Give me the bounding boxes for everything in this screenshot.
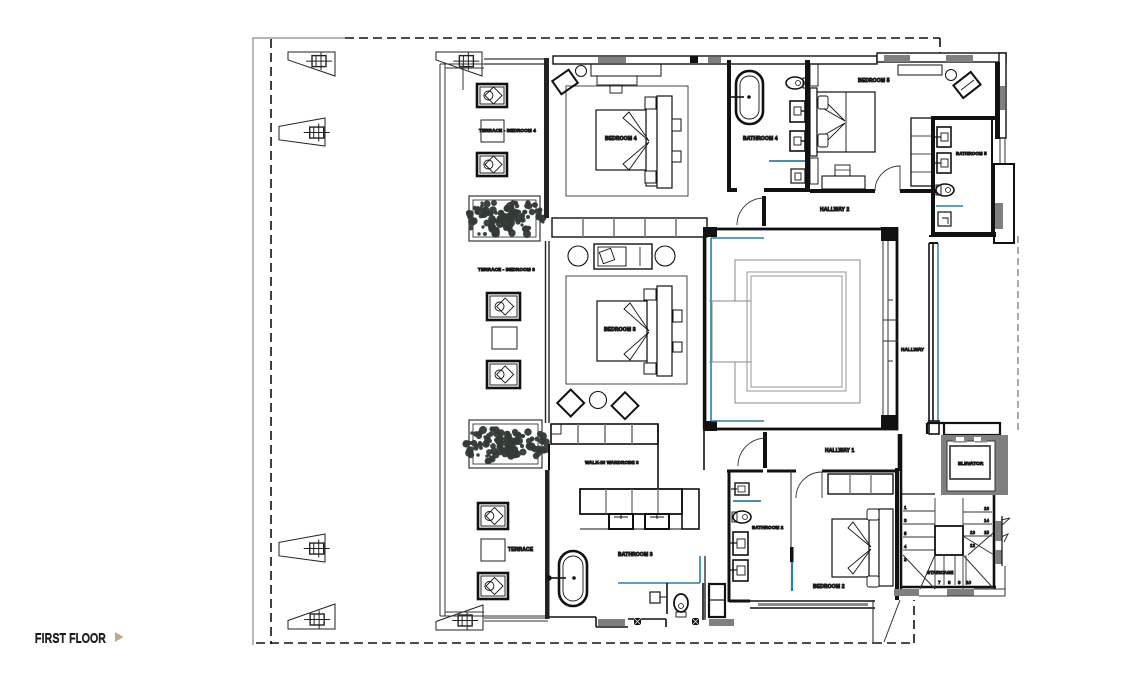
svg-text:1: 1	[904, 505, 907, 510]
svg-text:HALLWAY: HALLWAY	[901, 347, 924, 352]
svg-text:9: 9	[958, 580, 961, 585]
svg-text:WALK-IN WARDROBE 3: WALK-IN WARDROBE 3	[585, 460, 639, 465]
svg-text:5: 5	[904, 531, 907, 536]
svg-text:BEDROOM 5: BEDROOM 5	[858, 78, 890, 84]
svg-text:BEDROOM 3: BEDROOM 3	[604, 327, 636, 333]
svg-text:3: 3	[904, 518, 907, 523]
svg-text:TERRACE - BEDROOM 4: TERRACE - BEDROOM 4	[479, 128, 536, 133]
svg-text:12: 12	[970, 543, 976, 548]
svg-text:HALLWAY 2: HALLWAY 2	[820, 207, 849, 213]
svg-text:BEDROOM 2: BEDROOM 2	[813, 584, 845, 590]
svg-text:13: 13	[970, 530, 976, 535]
svg-text:8: 8	[948, 580, 951, 585]
svg-text:TERRACE: TERRACE	[508, 547, 534, 553]
svg-text:FIRST FLOOR: FIRST FLOOR	[35, 631, 106, 645]
svg-text:BATHROOM 3: BATHROOM 3	[618, 552, 653, 558]
svg-text:BATHROOM 4: BATHROOM 4	[743, 136, 778, 142]
svg-text:BATHROOM 5: BATHROOM 5	[956, 151, 987, 156]
svg-text:15: 15	[984, 530, 990, 535]
svg-text:STAIRCASE: STAIRCASE	[927, 570, 953, 575]
svg-text:14: 14	[984, 518, 990, 523]
svg-text:TERRACE - BEDROOM 3: TERRACE - BEDROOM 3	[478, 267, 535, 272]
svg-text:BATHROOM 2: BATHROOM 2	[752, 525, 784, 530]
svg-text:HALLWAY 1: HALLWAY 1	[825, 448, 854, 454]
svg-text:4: 4	[904, 544, 907, 549]
svg-text:BEDROOM 4: BEDROOM 4	[605, 136, 637, 142]
svg-text:7: 7	[938, 580, 941, 585]
svg-text:ELEVATOR: ELEVATOR	[958, 461, 984, 467]
svg-text:10: 10	[966, 580, 972, 585]
svg-text:16: 16	[984, 506, 990, 511]
